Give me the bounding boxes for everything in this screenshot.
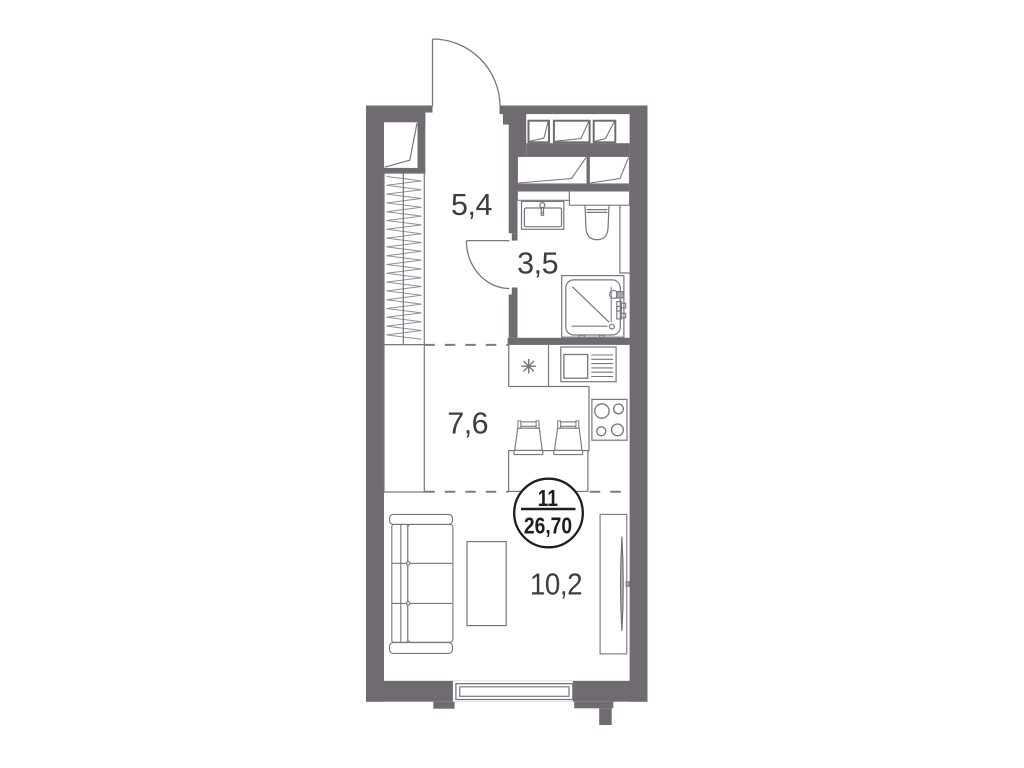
svg-text:10,2: 10,2 bbox=[530, 568, 582, 601]
svg-text:3,5: 3,5 bbox=[517, 247, 558, 281]
svg-text:26,70: 26,70 bbox=[524, 513, 572, 539]
svg-text:11: 11 bbox=[538, 485, 558, 511]
svg-text:5,4: 5,4 bbox=[451, 188, 492, 222]
svg-text:7,6: 7,6 bbox=[447, 407, 488, 441]
